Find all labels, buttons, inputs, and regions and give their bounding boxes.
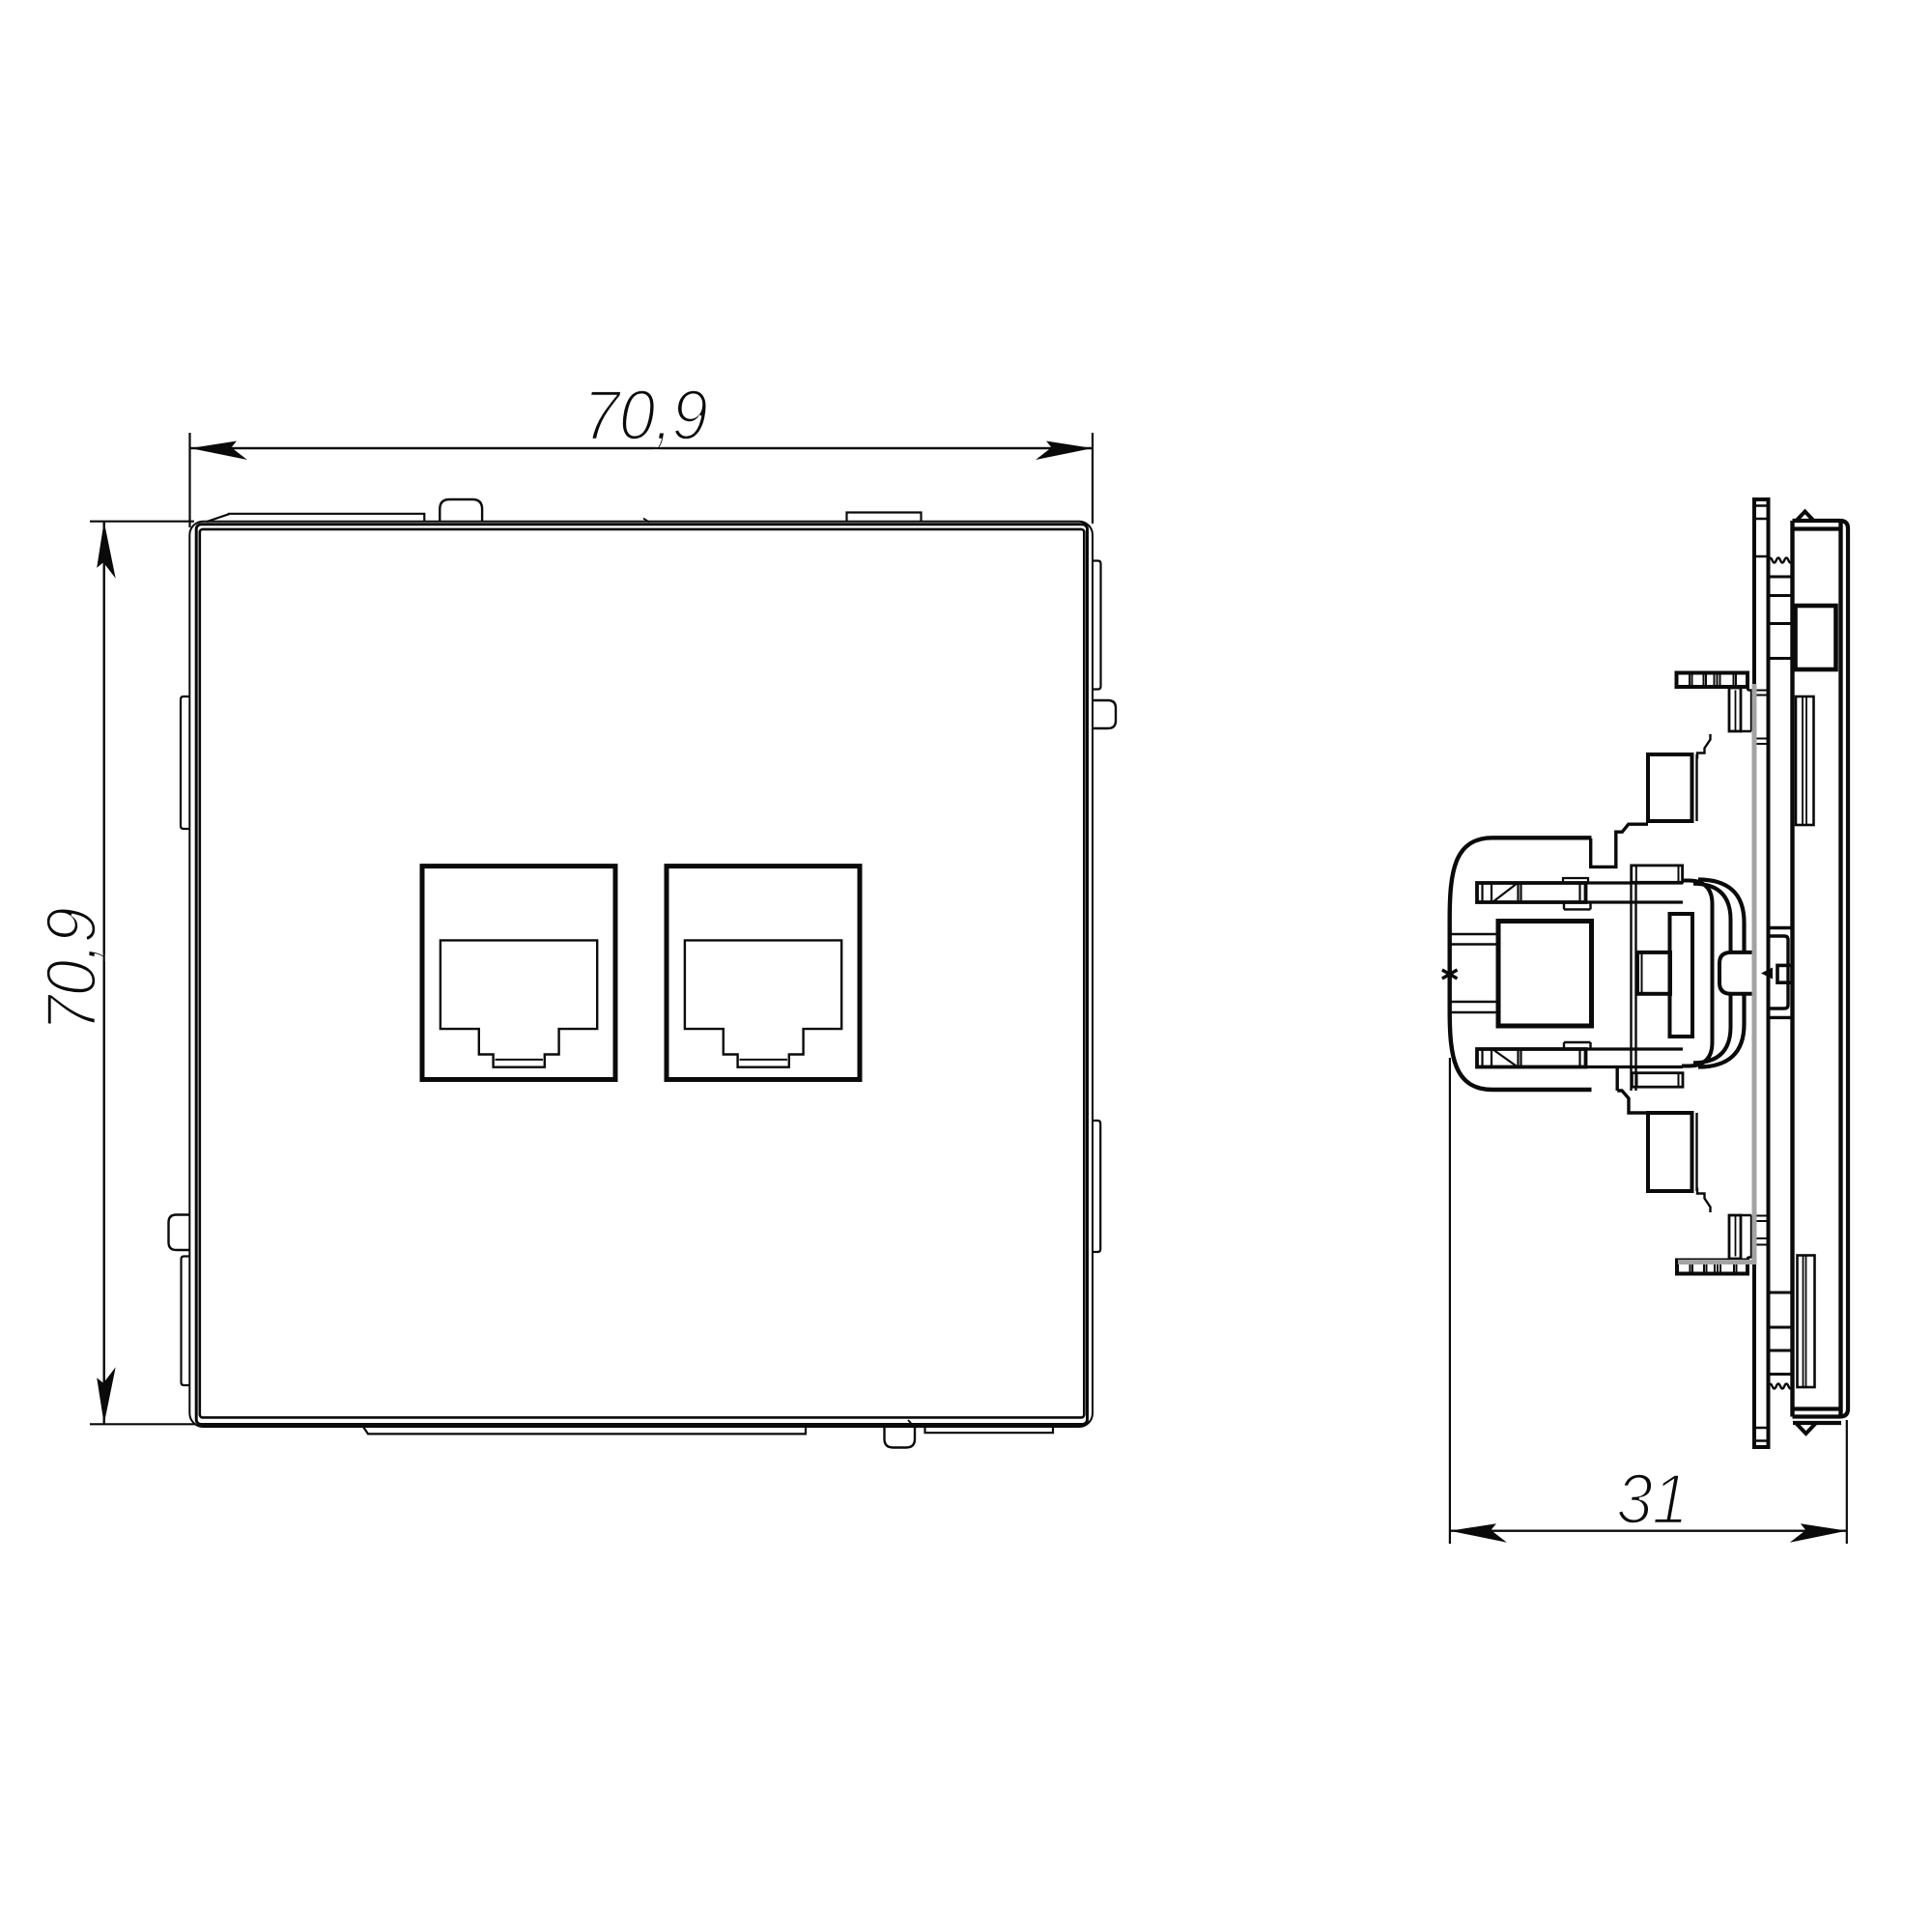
svg-text:31: 31 — [1616, 1460, 1688, 1539]
svg-text:70,9: 70,9 — [32, 908, 111, 1032]
svg-text:70,9: 70,9 — [583, 376, 707, 455]
